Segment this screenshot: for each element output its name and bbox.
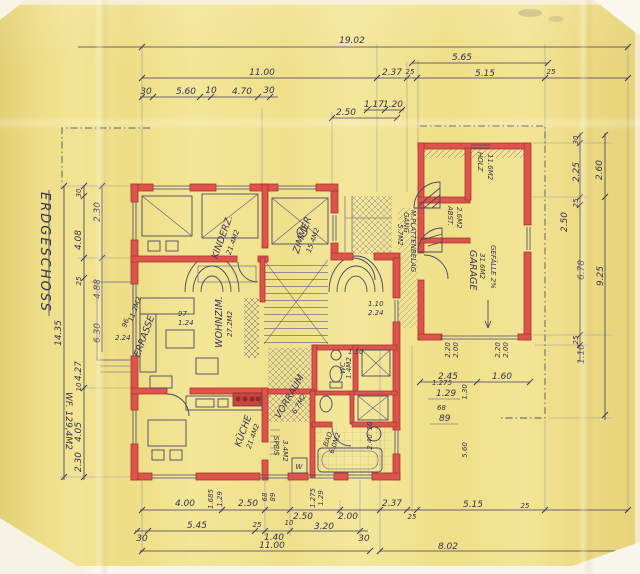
- dim-top-560: 5.60: [176, 87, 196, 97]
- dim-left-408: 4.08: [74, 230, 84, 250]
- chimney-hatch: [244, 298, 259, 358]
- dim-560: 5.60: [461, 442, 469, 458]
- dim-130: 1.30: [461, 384, 469, 400]
- dim-10b: 10: [366, 421, 374, 430]
- dim-bot-v6: 1.29: [317, 490, 325, 506]
- entry-walk-hatch: [352, 196, 392, 254]
- dim-top-470: 4.70: [232, 87, 252, 97]
- terrace: TERRASSE 11.2M2 2.24 96 97 1.24: [97, 282, 194, 372]
- dim-bot-237: 2.37: [382, 499, 402, 509]
- living-area-note: WF. 129,4M2: [63, 392, 73, 450]
- dim-bot3-1100: 11.00: [259, 541, 285, 551]
- dim-bot2-10: 10: [285, 519, 294, 527]
- dim-right-250: 2.50: [560, 212, 570, 232]
- scanned-floor-plan-sheet: 19.02 5.65 11.00 2.37 25 5.15 25 30 5.60…: [0, 0, 640, 574]
- dim-gar-rt: 2.20: [494, 342, 502, 358]
- dim-224b: 2.24: [368, 309, 384, 317]
- dim-bot-200: 2.00: [338, 512, 358, 522]
- garage-slope-label: GEFÄLLE 2%: [489, 245, 498, 289]
- dim-bot-v2: 1.29: [216, 491, 224, 507]
- dim-left-10: 10: [75, 382, 83, 391]
- room-garage-label: GARAGE: [467, 250, 478, 290]
- room-abst-label: ABST.: [446, 205, 454, 226]
- smudge-mark: [548, 16, 564, 22]
- dim-bot2-320: 3.20: [314, 522, 334, 532]
- slope-arrow: [485, 300, 491, 328]
- arched-niche-right: [329, 256, 383, 292]
- dim-top-515: 5.15: [475, 69, 495, 79]
- dim-bot-v1: 1.685: [207, 488, 215, 509]
- dim-top-117: 1.17: [364, 100, 384, 110]
- dim-68: 68: [437, 404, 446, 412]
- smudge-mark: [518, 9, 542, 17]
- room-abst-area: 2.6M2: [455, 207, 463, 229]
- dim-124: 1.24: [178, 319, 194, 327]
- dim-gar-lt: 2.20: [444, 342, 452, 358]
- dim-chain-bottom: 4.00 2.50 2.50 2.00 2.37 25 5.15 25 30 5…: [134, 487, 631, 554]
- dim-left-405: 4.05: [74, 422, 84, 442]
- room-holz-label: HOLZ: [476, 152, 484, 172]
- dim-left-30: 30: [75, 188, 83, 197]
- dim-bot-400: 4.00: [175, 499, 195, 509]
- dim-left-25: 25: [75, 276, 83, 285]
- washer-label: W: [296, 463, 304, 471]
- dim-top-30b: 30: [263, 86, 275, 96]
- dim-top-120: 1.20: [383, 100, 403, 110]
- room-terrasse-area: 11.2M2: [127, 295, 144, 323]
- room-wc-area: 1.4M2: [345, 357, 353, 379]
- dim-top-10: 10: [205, 86, 217, 96]
- dim-150: 1.50: [348, 348, 364, 356]
- dim-top-237: 2.37: [382, 68, 402, 78]
- dim-bot-25a: 25: [408, 513, 417, 521]
- garage-door-swing: [424, 255, 448, 279]
- dim-bot-250b: 2.50: [293, 512, 313, 522]
- dim-bot-v3: 68: [261, 492, 269, 501]
- dim-gar-lb: 2.00: [452, 342, 460, 358]
- kinderz-furniture: [142, 194, 258, 251]
- dim-bot3-802: 8.02: [438, 542, 458, 552]
- dim-bot2-30a: 30: [136, 534, 148, 544]
- room-wohnzim-label: WOHNZIM.: [214, 296, 225, 348]
- room-speis-label: SPEIS: [272, 436, 280, 456]
- room-garage-area: 31.6M2: [478, 253, 486, 280]
- room-wohnzim-area: 27.2M2: [226, 310, 234, 337]
- dim-bot2-545: 5.45: [187, 521, 207, 531]
- holz-wall-hatch: [423, 149, 527, 158]
- dim-left-427: 4.27: [74, 361, 84, 381]
- paper-crease: [0, 116, 640, 130]
- dim-terrace-224: 2.24: [115, 334, 131, 342]
- room-gang-note: M.PLATTENBELAG: [409, 210, 417, 273]
- dim-89: 89: [439, 414, 451, 424]
- dim-bot-v4: 89: [269, 492, 277, 501]
- room-holz-area: 11.6M2: [486, 154, 494, 181]
- dim-bot-515: 5.15: [463, 500, 483, 510]
- dim-gar-rb: 2.00: [502, 342, 510, 358]
- dim-129: 1.29: [436, 389, 456, 399]
- paper-crease: [94, 0, 110, 574]
- dim-right-925: 9.25: [596, 266, 606, 286]
- dim-top-565: 5.65: [452, 53, 472, 63]
- paper-crease: [578, 0, 594, 574]
- room-gang-area: 5.7M2: [396, 224, 404, 246]
- dim-top-25a: 25: [406, 68, 415, 76]
- floor-title: ERDGESCHOSS: [37, 192, 52, 313]
- kinderz-door-swing: [238, 262, 258, 282]
- dim-top-30a: 30: [140, 87, 152, 97]
- dim-chain-top: 19.02 5.65 11.00 2.37 25 5.15 25 30 5.60…: [78, 36, 631, 121]
- dim-bot2-25: 25: [253, 521, 262, 529]
- dim-top-25b: 25: [547, 68, 556, 76]
- dim-left-total: 14.35: [54, 320, 64, 346]
- dim-top-total: 19.02: [339, 36, 365, 46]
- room-speis-area: 3.4M2: [281, 440, 289, 462]
- dim-110b: 1.10: [368, 300, 384, 308]
- dim-240: 2.40: [366, 434, 374, 450]
- dim-bot-v5: 1.275: [309, 487, 317, 508]
- dim-top-1100: 11.00: [249, 68, 275, 78]
- dim-gar-160: 1.60: [492, 372, 512, 382]
- dim-right-260: 2.60: [595, 160, 605, 180]
- dim-bot-25b: 25: [521, 502, 530, 510]
- dim-gar-245: 2.45: [438, 372, 458, 382]
- dim-bot2-30b: 30: [358, 534, 370, 544]
- dim-bot-250a: 2.50: [238, 499, 258, 509]
- dim-left-230b: 2.30: [74, 452, 84, 472]
